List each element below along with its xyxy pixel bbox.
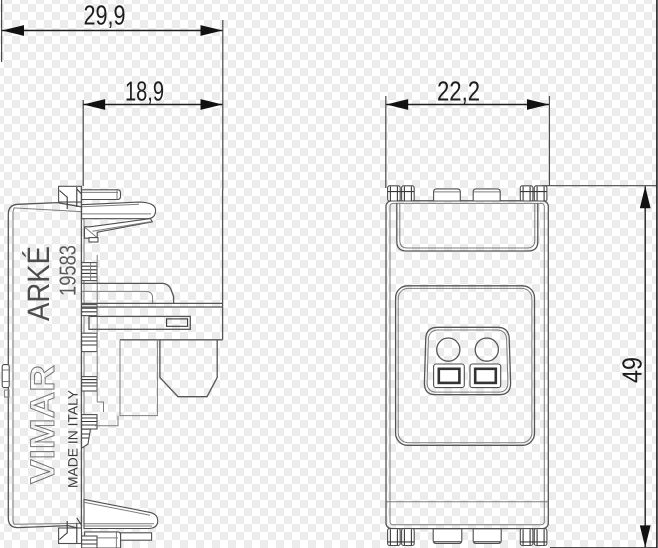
svg-text:VIMAR: VIMAR	[24, 365, 62, 484]
svg-text:18,9: 18,9	[125, 75, 164, 106]
svg-text:29,9: 29,9	[84, 0, 126, 31]
svg-text:49: 49	[617, 357, 648, 383]
svg-text:ARKÉ: ARKÉ	[21, 246, 56, 321]
svg-text:MADE IN ITALY: MADE IN ITALY	[66, 390, 81, 488]
svg-text:19583: 19583	[55, 245, 81, 296]
svg-text:22,2: 22,2	[437, 75, 480, 106]
